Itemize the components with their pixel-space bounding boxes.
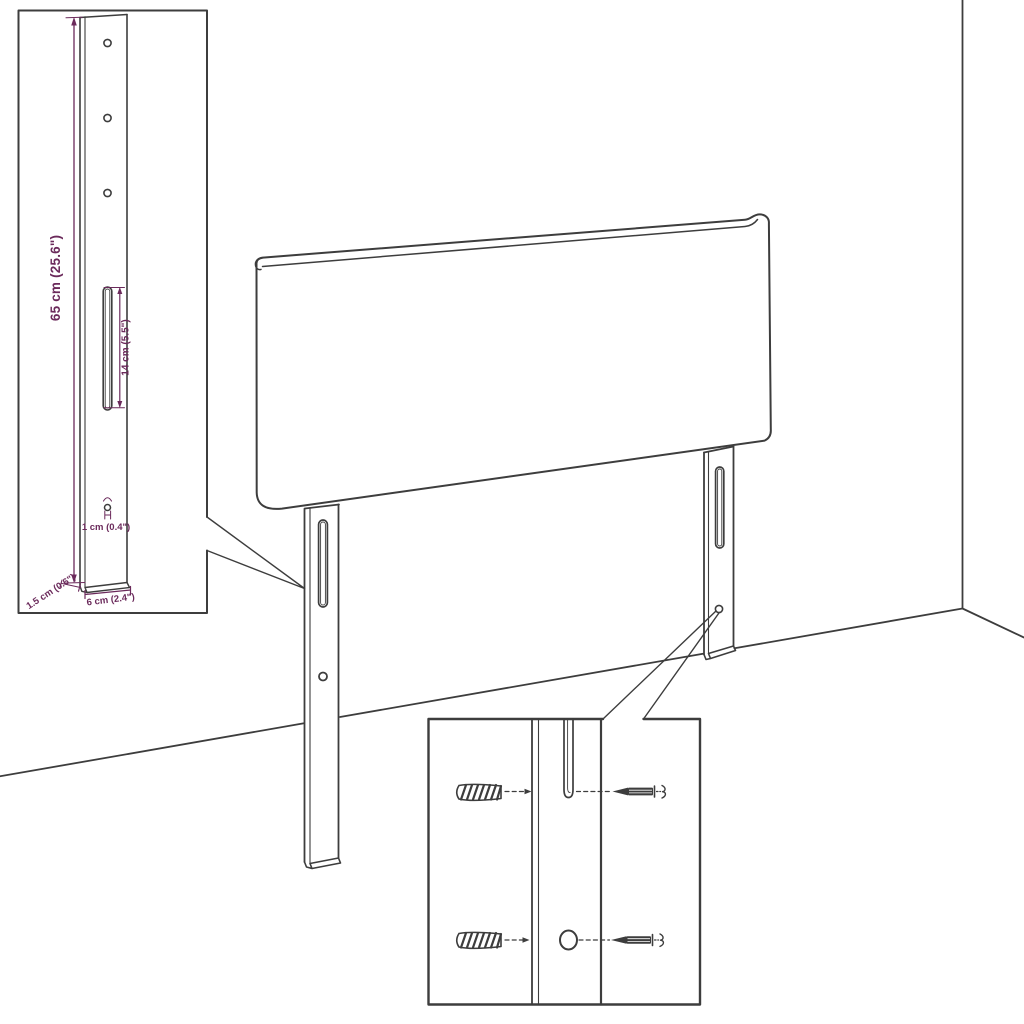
wall-baseline-left [0,609,963,777]
bracket-slot [103,287,112,410]
wall-plug-icon [457,932,501,948]
headboard-panel-outline [256,214,770,509]
dimension-height-arrow-top [71,17,77,26]
leg-closeup-slot-inner-line [568,719,571,793]
dimension-thickness-label: 1.5 cm (0.6") [25,572,78,612]
headboard-panel [255,214,770,509]
wall-plug-icon [457,784,501,800]
bracket-drawing [80,15,130,593]
dimension-height-ticks [66,17,85,583]
bracket-inset-callout-lines [207,517,305,589]
left-leg-hole [319,673,327,681]
right-leg-mount-hole [715,605,722,612]
bracket-slot-inner-line [105,289,110,408]
mounting-detail-inset [429,611,720,1005]
bracket-top-edge [80,15,127,18]
hardware-row-slot [457,784,666,800]
headboard-left-leg [305,505,341,869]
dimension-thickness: 1.5 cm (0.6") [25,572,81,612]
right-leg-slot-inner-line [718,469,722,546]
dimension-hole-label: 1 cm (0.4") [82,522,130,533]
plug-leader-arrow-slot [525,789,532,795]
left-leg-slot-inner-line [321,522,326,605]
left-leg-slot [319,520,328,607]
mounting-inset-callout-lines [603,611,719,719]
leg-closeup-strip [532,719,601,1005]
screw-icon-slot [613,786,666,799]
bracket-hole-2 [104,114,111,121]
right-leg-slot [716,467,724,548]
headboard-view [255,214,770,868]
leg-closeup-hole [560,931,577,950]
wall-baseline-right [963,609,1024,638]
product-dimension-diagram: 65 cm (25.6") 14 cm (5.5") 1 cm (0.4") 1… [0,0,1024,1024]
dimension-hole-arc [104,498,112,501]
leg-closeup-slot [564,719,573,798]
plug-leader-arrow-hole [523,937,530,943]
screw-icon-hole [611,934,663,946]
dimension-hole-ticks [105,511,111,519]
dimension-slot-label: 14 cm (5.5") [121,319,132,375]
bracket-hole-3 [104,189,111,196]
diagram-canvas: 65 cm (25.6") 14 cm (5.5") 1 cm (0.4") 1… [0,0,1024,1024]
bracket-hole-1 [104,39,111,46]
dimension-hole: 1 cm (0.4") [82,498,130,533]
dimension-height-label: 65 cm (25.6") [48,235,63,321]
bracket-hole-bottom [105,505,111,511]
dimension-slot-arrow-bottom [117,401,122,408]
dimension-slot-arrow-top [117,287,122,294]
